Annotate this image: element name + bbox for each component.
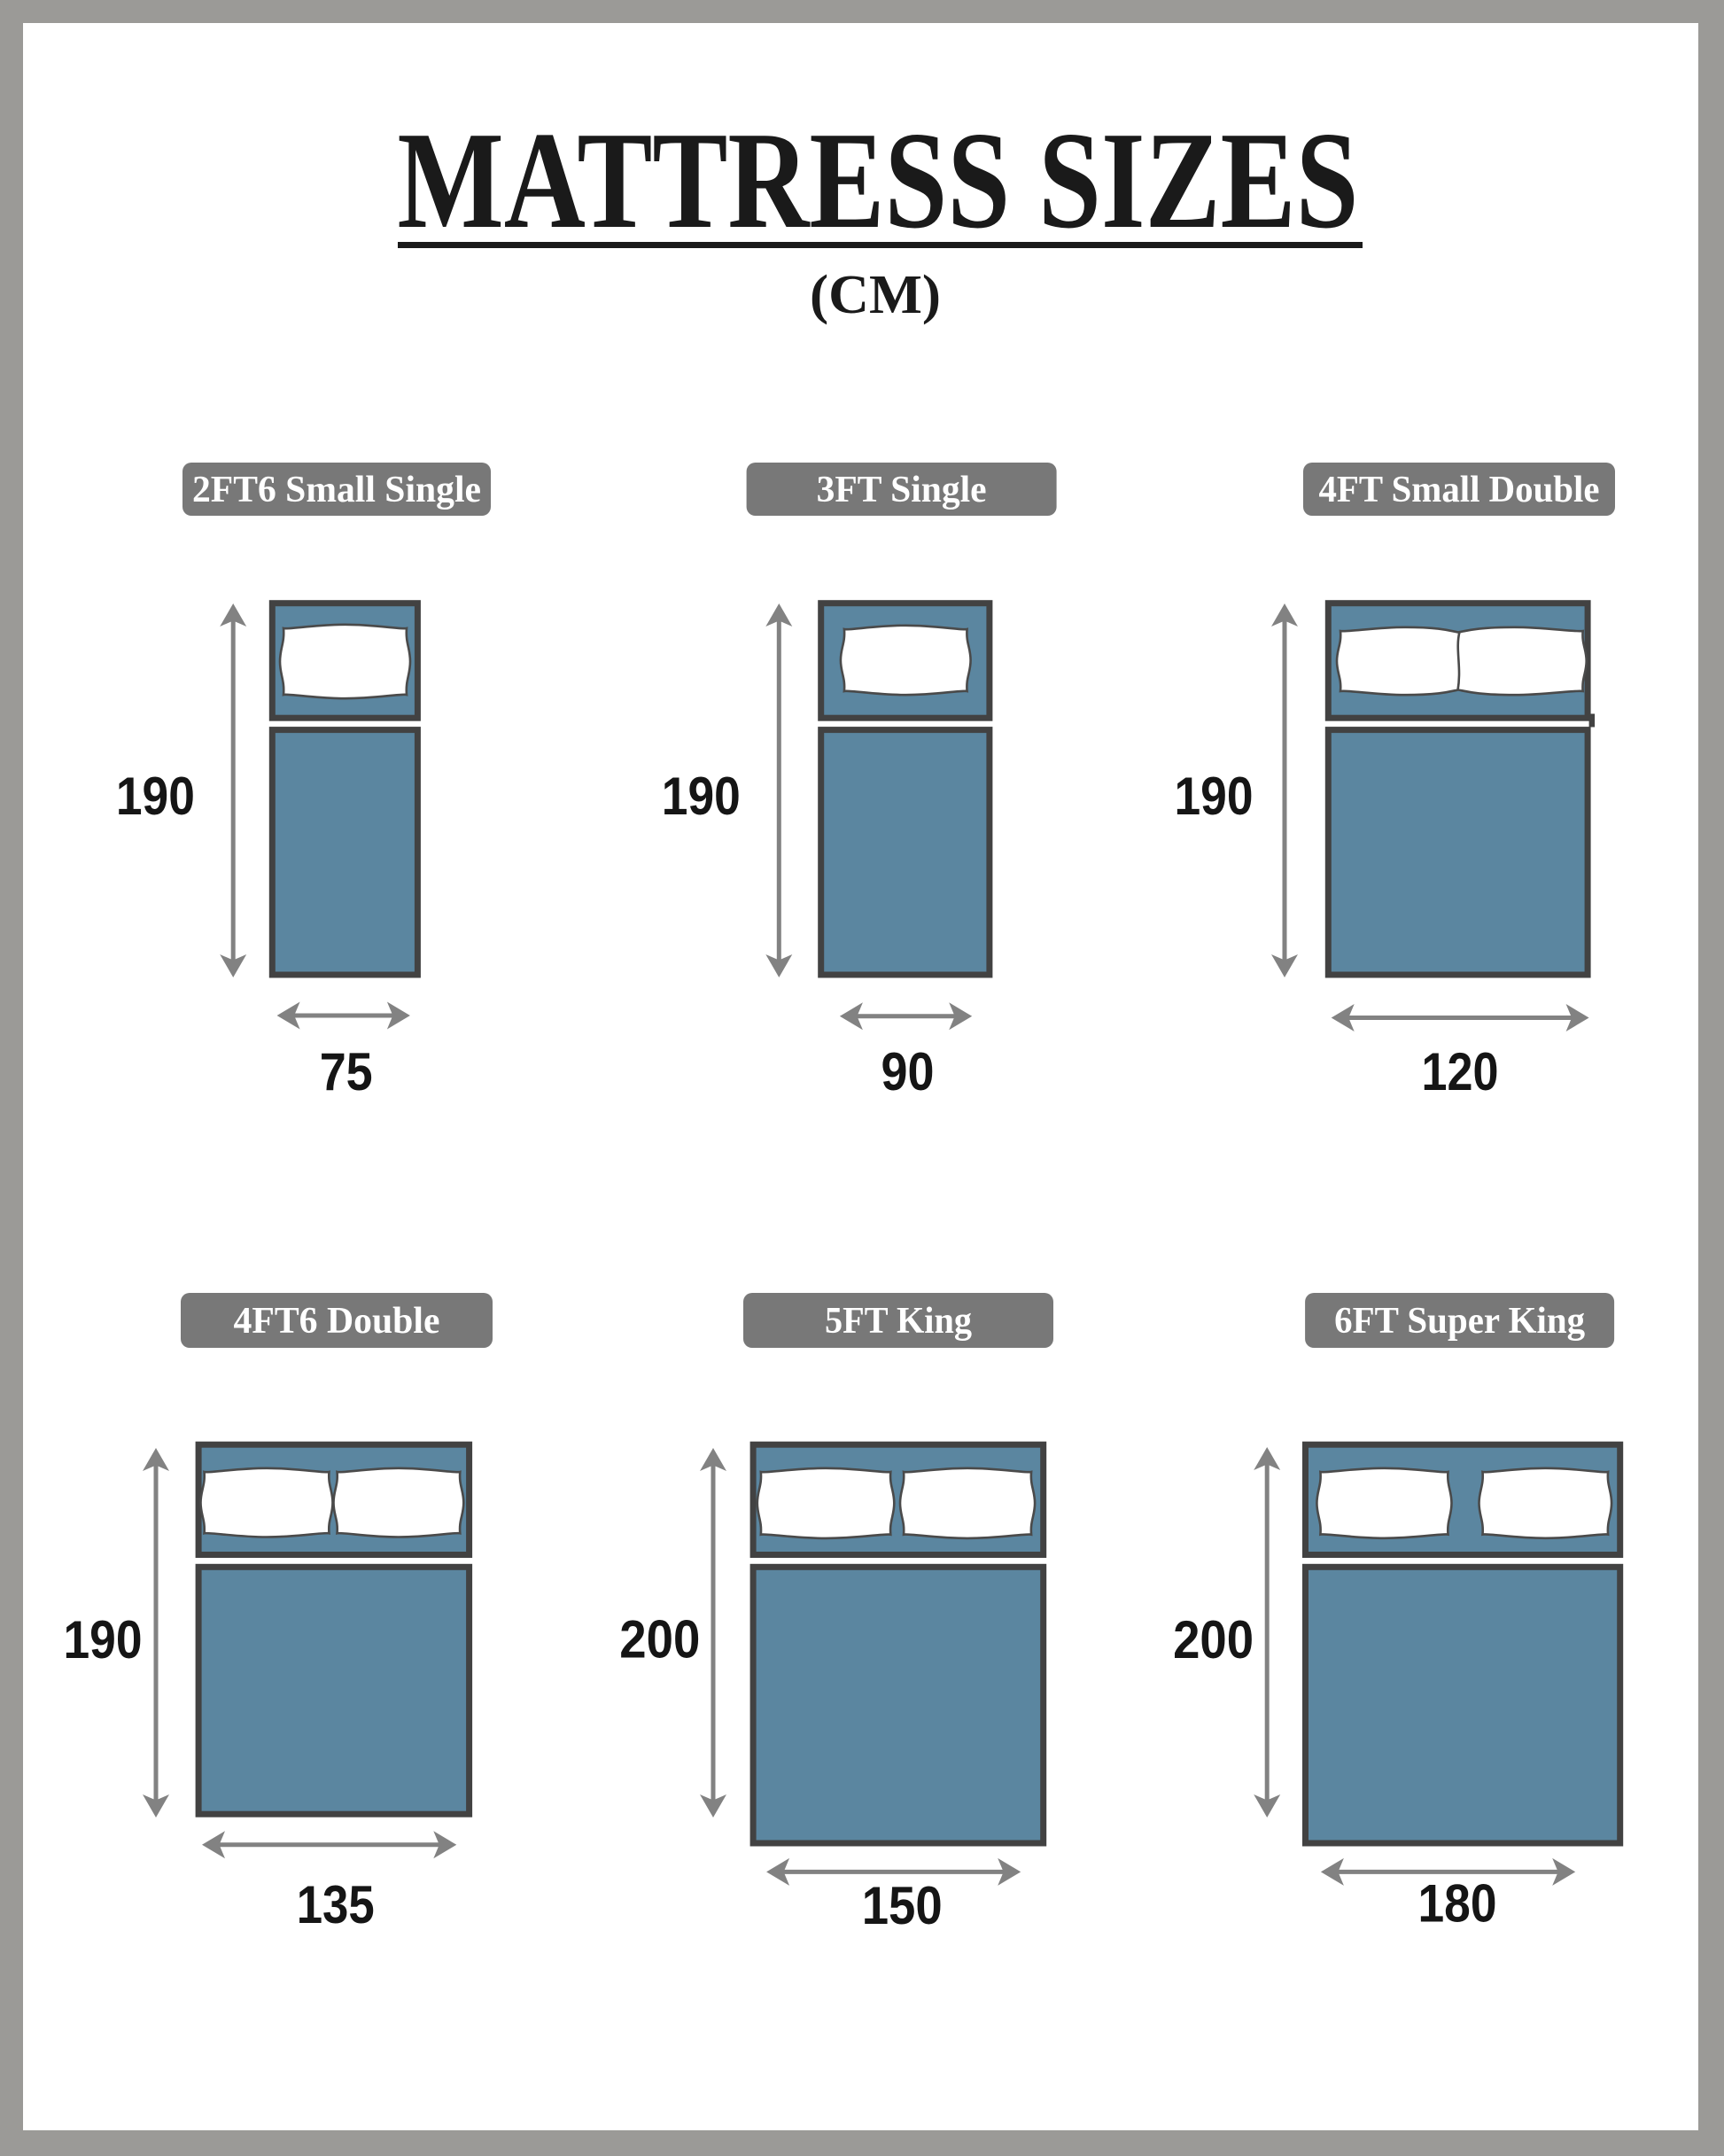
svg-text:200: 200 [619, 1610, 700, 1670]
svg-text:150: 150 [862, 1876, 943, 1935]
svg-text:2FT6 Small Single: 2FT6 Small Single [192, 470, 481, 510]
svg-text:3FT Single: 3FT Single [817, 470, 987, 510]
svg-text:200: 200 [1173, 1610, 1254, 1670]
svg-text:190: 190 [1175, 767, 1254, 826]
svg-text:6FT Super King: 6FT Super King [1334, 1301, 1585, 1342]
svg-text:180: 180 [1418, 1874, 1497, 1934]
svg-text:MATTRESS SIZES: MATTRESS SIZES [398, 103, 1359, 257]
svg-text:135: 135 [297, 1875, 375, 1934]
svg-text:190: 190 [64, 1610, 143, 1670]
svg-text:75: 75 [320, 1042, 373, 1101]
svg-text:5FT King: 5FT King [825, 1301, 972, 1342]
svg-text:190: 190 [116, 767, 195, 826]
svg-text:120: 120 [1422, 1042, 1499, 1101]
svg-text:90: 90 [881, 1042, 935, 1101]
svg-text:4FT Small Double: 4FT Small Double [1319, 470, 1600, 510]
svg-text:(CM): (CM) [810, 265, 941, 325]
svg-text:4FT6 Double: 4FT6 Double [234, 1301, 440, 1342]
svg-text:190: 190 [662, 767, 741, 826]
